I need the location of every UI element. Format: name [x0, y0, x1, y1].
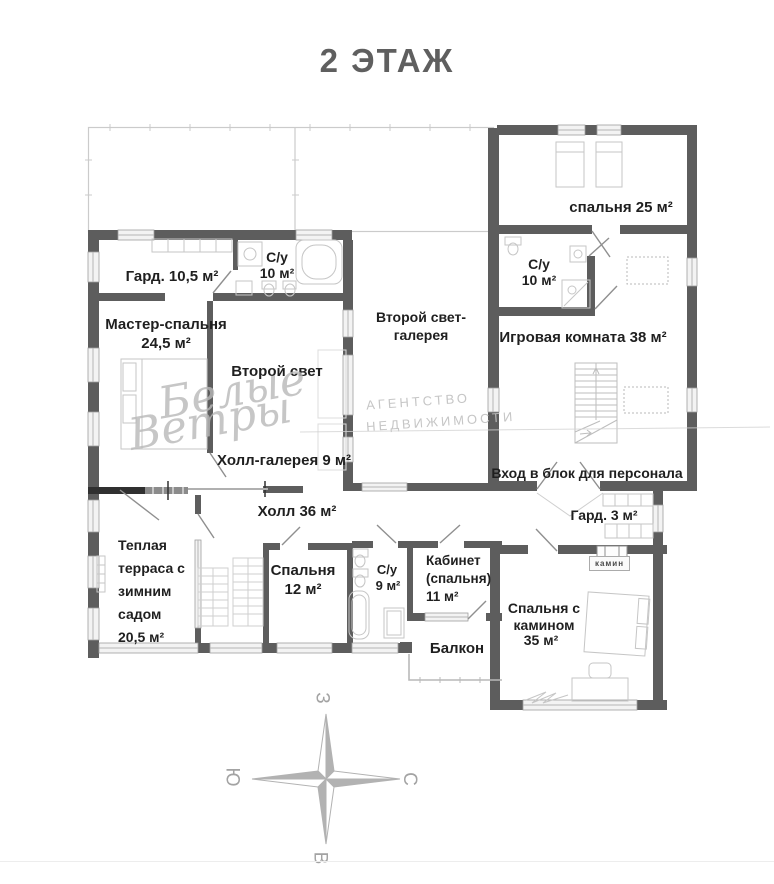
page-bottom-divider: [0, 861, 774, 862]
label-bathroom-9-area: 9 м²: [376, 578, 401, 594]
stairs-playroom: [575, 363, 617, 443]
label-wardrobe-3: Гард. 3 м²: [570, 507, 637, 524]
compass-south-label: Ю: [221, 767, 243, 786]
compass-east-label: В: [308, 852, 330, 865]
label-staff-entrance: Вход в блок для персонала: [491, 465, 682, 482]
label-cabinet-line2: (спальня): [426, 570, 491, 588]
label-terrace-line4: садом: [118, 603, 185, 626]
label-bedroom-12-area: 12 м²: [285, 581, 322, 599]
label-bedroom-25: спальня 25 м²: [569, 199, 672, 217]
roof-outline: [85, 124, 497, 232]
stairs-void: [198, 558, 263, 626]
label-master-bedroom-name: Мастер-спальня: [105, 316, 227, 334]
label-fireplace: камин: [589, 556, 630, 571]
label-terrace-line2: терраса с: [118, 557, 185, 580]
label-cabinet-line3: 11 м²: [426, 588, 491, 606]
label-terrace-line3: зимним: [118, 580, 185, 603]
label-playroom: Игровая комната 38 м²: [499, 329, 666, 347]
label-terrace-line5: 20,5 м²: [118, 626, 185, 649]
balcony-railing: [409, 654, 502, 683]
label-bathroom-9-name: С/у: [377, 562, 397, 578]
label-bedroom-fireplace-line3: 35 м²: [524, 632, 558, 649]
floor-plan-page: 2 ЭТАЖ: [0, 0, 774, 884]
label-bathroom10-right-area: 10 м²: [522, 272, 556, 289]
label-cabinet-line1: Кабинет: [426, 552, 491, 570]
label-hall-36: Холл 36 м²: [258, 503, 337, 521]
label-terrace: Теплая терраса с зимним садом 20,5 м²: [118, 534, 185, 649]
label-bedroom-12-name: Спальня: [271, 562, 336, 580]
label-gallery-line1: Второй свет-: [376, 309, 466, 326]
compass-north-label: С: [398, 772, 420, 786]
compass-west-label: З: [311, 692, 333, 703]
label-hall-gallery: Холл-галерея 9 м²: [217, 452, 351, 470]
label-balcony: Балкон: [430, 640, 484, 658]
label-bathroom10-right-name: С/у: [528, 256, 550, 273]
label-cabinet: Кабинет (спальня) 11 м²: [426, 552, 491, 606]
label-bedroom-fireplace-line1: Спальня с: [508, 600, 580, 617]
terrace-partition: [88, 481, 268, 500]
compass-rose-icon: [252, 714, 400, 844]
label-terrace-line1: Теплая: [118, 534, 185, 557]
label-bathroom10-left-name: С/у: [266, 249, 288, 266]
label-bathroom10-left-area: 10 м²: [260, 265, 294, 282]
label-gallery-line2: галерея: [394, 327, 449, 344]
floor-plan-drawing: [0, 0, 774, 884]
label-master-bedroom-area: 24,5 м²: [141, 335, 190, 353]
label-wardrobe-105: Гард. 10,5 м²: [126, 268, 219, 286]
